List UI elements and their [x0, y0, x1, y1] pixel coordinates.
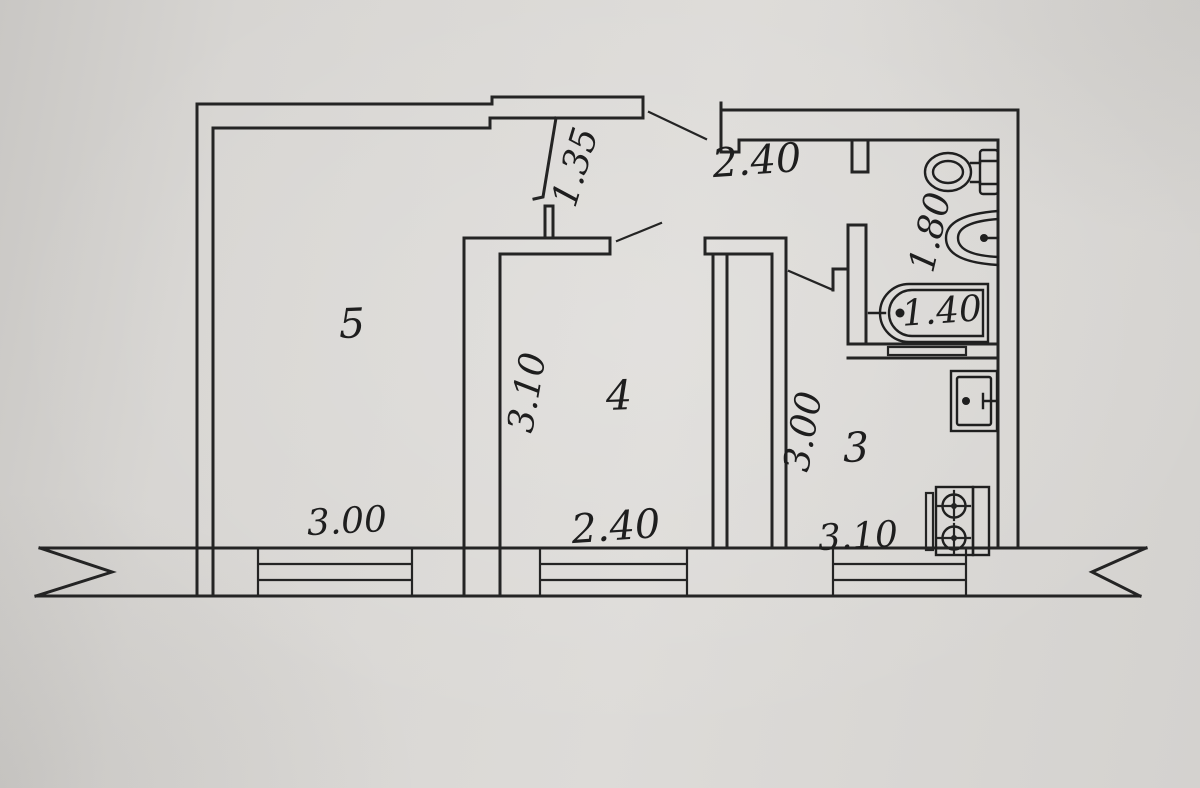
bathroom-threshold	[888, 347, 966, 355]
dimension-room5-width: 3.00	[306, 499, 388, 544]
wall-break-left	[36, 548, 112, 596]
window-room4	[540, 548, 687, 596]
room-label-4: 4	[604, 371, 633, 420]
kitchen-sink-icon	[951, 371, 997, 431]
wall-break-right	[1092, 548, 1146, 596]
dimension-bathtub-length: 1.40	[900, 288, 983, 334]
hallway-bottom-wall	[705, 238, 786, 254]
bathroom-left-wall-upper	[852, 140, 868, 172]
entry-door-swing	[649, 112, 706, 139]
dimension-room3-width: 3.10	[817, 514, 899, 559]
room4-top-wall	[464, 238, 610, 254]
window-room5	[258, 548, 412, 596]
kitchen-door-jamb	[833, 269, 848, 290]
room-label-5: 5	[338, 299, 366, 348]
kitchen-door-swing	[789, 271, 833, 290]
dimension-hallway-width: 2.40	[710, 135, 803, 187]
bathroom-left-wall-lower	[848, 225, 866, 344]
wall-room5-room4	[464, 238, 500, 596]
scanned-floor-plan: 5 4 3 1.35 2.40 1.80 1.40 3.10 3.00 3.00…	[0, 0, 1200, 788]
floor-plan-canvas: 5 4 3 1.35 2.40 1.80 1.40 3.10 3.00 3.00…	[0, 0, 1200, 788]
room4-door-swing	[617, 223, 661, 241]
room3-left-wall	[772, 238, 786, 548]
room-label-3: 3	[842, 423, 870, 472]
dimension-room4-width: 2.40	[569, 501, 662, 553]
dimension-room4-depth: 3.10	[500, 350, 554, 436]
dimension-bathroom-depth: 1.80	[902, 189, 960, 276]
labels: 5 4 3 1.35 2.40 1.80 1.40 3.10 3.00 3.00…	[306, 123, 983, 559]
room4-right-wall	[713, 254, 727, 548]
toilet-icon	[925, 150, 998, 194]
stove-icon	[926, 487, 989, 555]
